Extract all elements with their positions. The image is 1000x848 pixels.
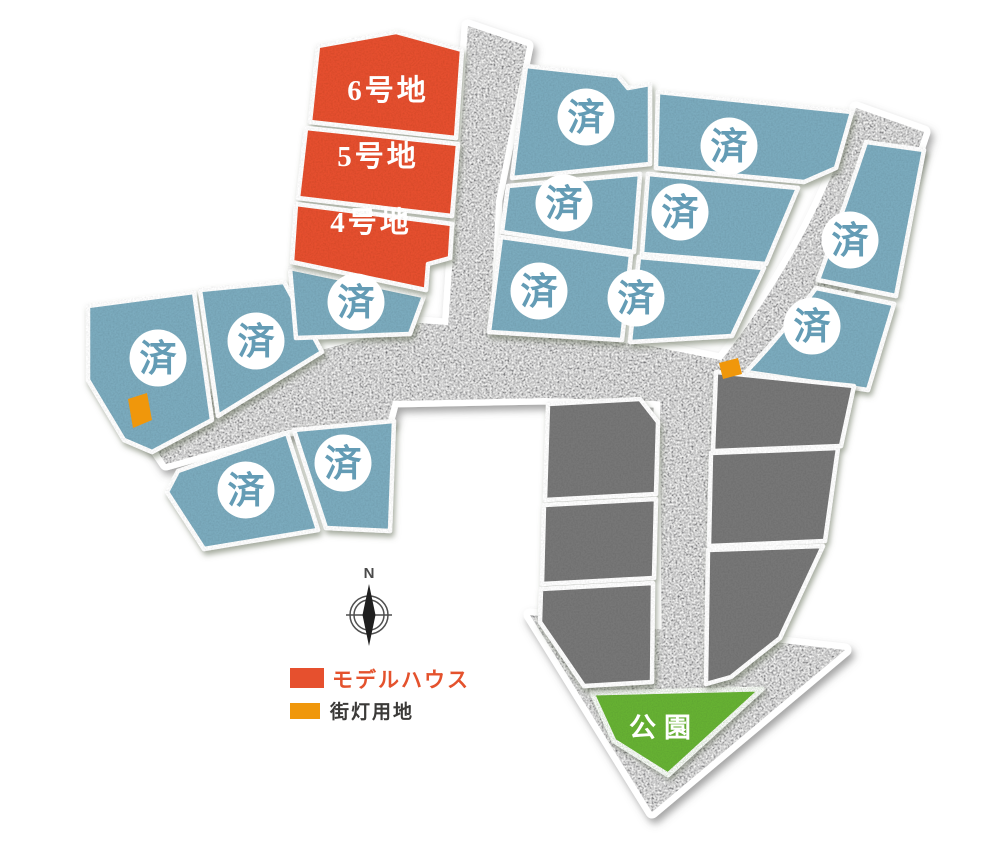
sold-badge: 済 [511, 263, 568, 320]
sold-badge-text: 済 [832, 220, 870, 262]
reserved-lot [713, 372, 854, 451]
legend-label-street-light: 街灯用地 [329, 700, 414, 723]
sold-badge-text: 済 [338, 282, 376, 324]
sold-badge: 済 [536, 175, 593, 232]
legend-swatch-model-house [290, 668, 324, 688]
sold-badge-text: 済 [618, 278, 656, 320]
sold-badge-text: 済 [238, 321, 276, 363]
sold-badge: 済 [328, 274, 385, 331]
sold-badge: 済 [558, 89, 615, 146]
legend: モデルハウス 街灯用地 [290, 668, 470, 723]
legend-swatch-street-light [290, 703, 320, 719]
reserved-lot [709, 448, 838, 546]
sold-badge: 済 [822, 212, 879, 269]
sold-badge-text: 済 [228, 470, 266, 512]
lot-4-label: 4号地 [330, 206, 412, 239]
sold-badge: 済 [784, 298, 841, 355]
sold-badge: 済 [130, 330, 187, 387]
sold-badge-text: 済 [140, 338, 178, 380]
lot-5-label: 5号地 [337, 140, 419, 173]
sold-badge-text: 済 [794, 306, 832, 348]
compass-needle-icon [363, 584, 376, 646]
reserved-lot [542, 499, 656, 584]
subdivision-map-page: 公園 6号地 5号地 4号地 [0, 0, 1000, 848]
lot-6-label: 6号地 [347, 74, 429, 107]
sold-badge: 済 [701, 118, 758, 175]
sold-badge-text: 済 [662, 192, 700, 234]
park-label: 公園 [629, 713, 699, 743]
sold-badge-text: 済 [325, 443, 363, 485]
sold-badge: 済 [315, 435, 372, 492]
north-label: N [364, 565, 375, 582]
reserved-lot [545, 399, 658, 500]
legend-label-model-house: モデルハウス [332, 668, 470, 692]
sold-badge-text: 済 [711, 126, 749, 168]
sold-badge: 済 [218, 462, 275, 519]
sold-badge-text: 済 [568, 97, 606, 139]
sold-badge-text: 済 [546, 183, 584, 225]
sold-badge: 済 [608, 270, 665, 327]
site-map: 公園 6号地 5号地 4号地 [0, 0, 1000, 848]
sold-badge-text: 済 [521, 271, 559, 313]
sold-badge: 済 [228, 313, 285, 370]
compass-icon: N [346, 565, 392, 646]
sold-badge: 済 [652, 184, 709, 241]
